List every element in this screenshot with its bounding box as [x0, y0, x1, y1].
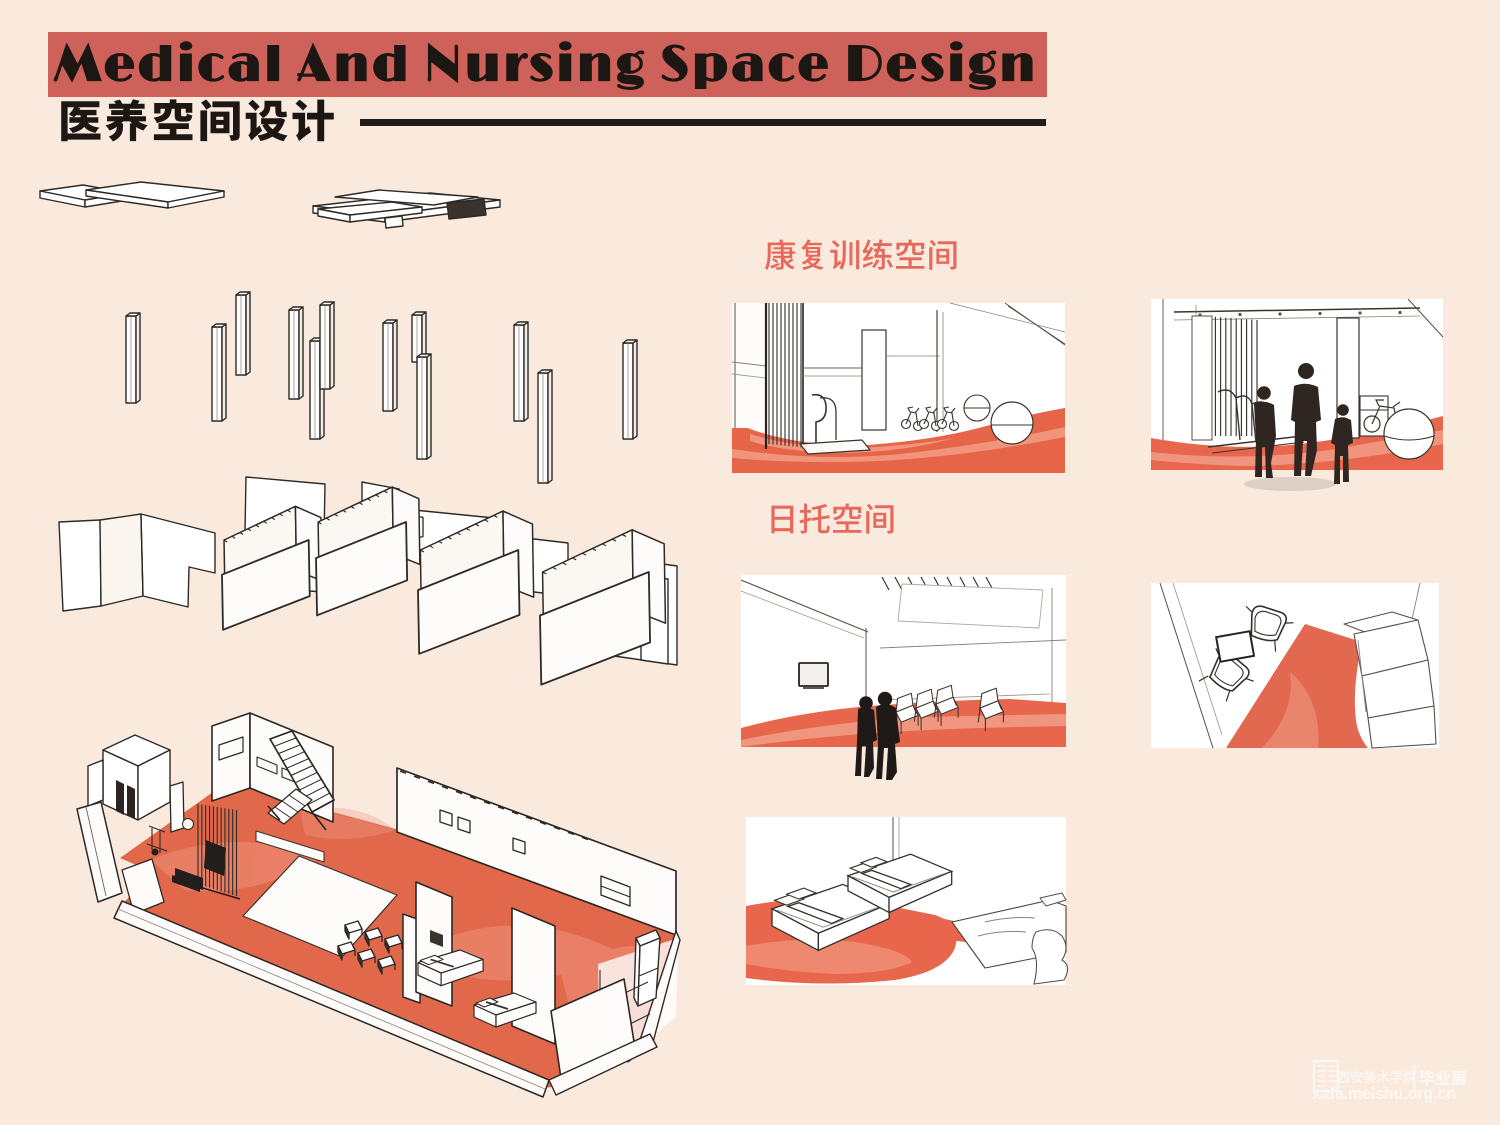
svg-text:xafa.meishu.org.cn: xafa.meishu.org.cn: [1312, 1084, 1456, 1103]
